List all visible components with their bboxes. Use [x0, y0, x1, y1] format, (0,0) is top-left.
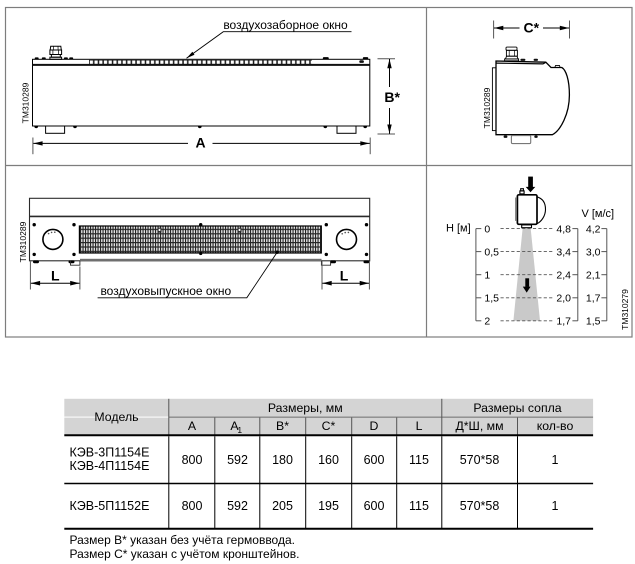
- svg-text:570*58: 570*58: [460, 499, 500, 513]
- svg-text:592: 592: [227, 453, 248, 467]
- svg-text:0,5: 0,5: [484, 247, 499, 259]
- svg-text:B*: B*: [384, 89, 400, 105]
- svg-text:205: 205: [272, 499, 293, 513]
- svg-text:0: 0: [484, 224, 490, 236]
- svg-text:570*58: 570*58: [460, 453, 500, 467]
- svg-text:1: 1: [552, 499, 559, 513]
- svg-text:воздуховыпускное окно: воздуховыпускное окно: [100, 284, 231, 298]
- svg-text:L: L: [416, 419, 423, 433]
- svg-text:Размер B* указан без учёта гер: Размер B* указан без учёта гермоввода.: [70, 533, 295, 547]
- svg-text:1: 1: [484, 270, 490, 282]
- svg-text:ТМ310279: ТМ310279: [620, 289, 630, 330]
- svg-text:1,7: 1,7: [556, 316, 571, 328]
- svg-text:C*: C*: [322, 419, 336, 433]
- svg-text:1,7: 1,7: [586, 293, 601, 305]
- svg-text:3,4: 3,4: [556, 247, 571, 259]
- svg-text:воздухозаборное окно: воздухозаборное окно: [223, 18, 348, 32]
- svg-text:2: 2: [484, 316, 490, 328]
- svg-text:Размеры, мм: Размеры, мм: [268, 401, 343, 415]
- svg-text:L: L: [51, 267, 60, 283]
- svg-text:1: 1: [237, 425, 242, 435]
- svg-text:A: A: [188, 419, 197, 433]
- svg-text:C*: C*: [524, 19, 540, 35]
- svg-text:КЭВ-4П1154Е: КЭВ-4П1154Е: [70, 459, 150, 473]
- svg-text:L: L: [340, 267, 349, 283]
- svg-text:1,5: 1,5: [586, 316, 601, 328]
- svg-text:ТМ310289: ТМ310289: [482, 87, 492, 128]
- svg-text:B*: B*: [276, 419, 289, 433]
- svg-text:1: 1: [552, 453, 559, 467]
- svg-text:600: 600: [364, 453, 385, 467]
- svg-text:D: D: [370, 419, 379, 433]
- svg-text:Модель: Модель: [94, 410, 138, 424]
- svg-text:КЭВ-3П1154Е: КЭВ-3П1154Е: [70, 446, 150, 460]
- svg-text:2,0: 2,0: [556, 293, 571, 305]
- svg-text:2,4: 2,4: [556, 270, 571, 282]
- svg-text:1,5: 1,5: [484, 293, 499, 305]
- svg-text:V [м/с]: V [м/с]: [581, 208, 614, 220]
- svg-text:800: 800: [182, 499, 203, 513]
- svg-text:592: 592: [227, 499, 248, 513]
- svg-text:160: 160: [318, 453, 339, 467]
- svg-text:4,2: 4,2: [586, 224, 601, 236]
- svg-text:КЭВ-5П1152Е: КЭВ-5П1152Е: [70, 499, 150, 513]
- svg-text:Размер C* указан с учётом крон: Размер C* указан с учётом кронштейнов.: [70, 547, 300, 561]
- svg-text:4,8: 4,8: [556, 224, 571, 236]
- svg-text:800: 800: [182, 453, 203, 467]
- svg-text:ТМ310289: ТМ310289: [18, 221, 28, 262]
- svg-text:600: 600: [364, 499, 385, 513]
- svg-text:Размеры сопла: Размеры сопла: [473, 401, 561, 415]
- svg-text:Н [м]: Н [м]: [446, 222, 471, 234]
- svg-text:180: 180: [272, 453, 293, 467]
- svg-text:ТМ310289: ТМ310289: [20, 82, 30, 123]
- svg-text:115: 115: [409, 499, 429, 513]
- svg-text:кол-во: кол-во: [537, 419, 574, 433]
- svg-text:Д*Ш, мм: Д*Ш, мм: [455, 419, 503, 433]
- svg-text:A: A: [196, 134, 206, 150]
- svg-text:195: 195: [318, 499, 339, 513]
- svg-text:2,1: 2,1: [586, 270, 601, 282]
- svg-text:3,0: 3,0: [586, 247, 601, 259]
- svg-text:115: 115: [409, 453, 429, 467]
